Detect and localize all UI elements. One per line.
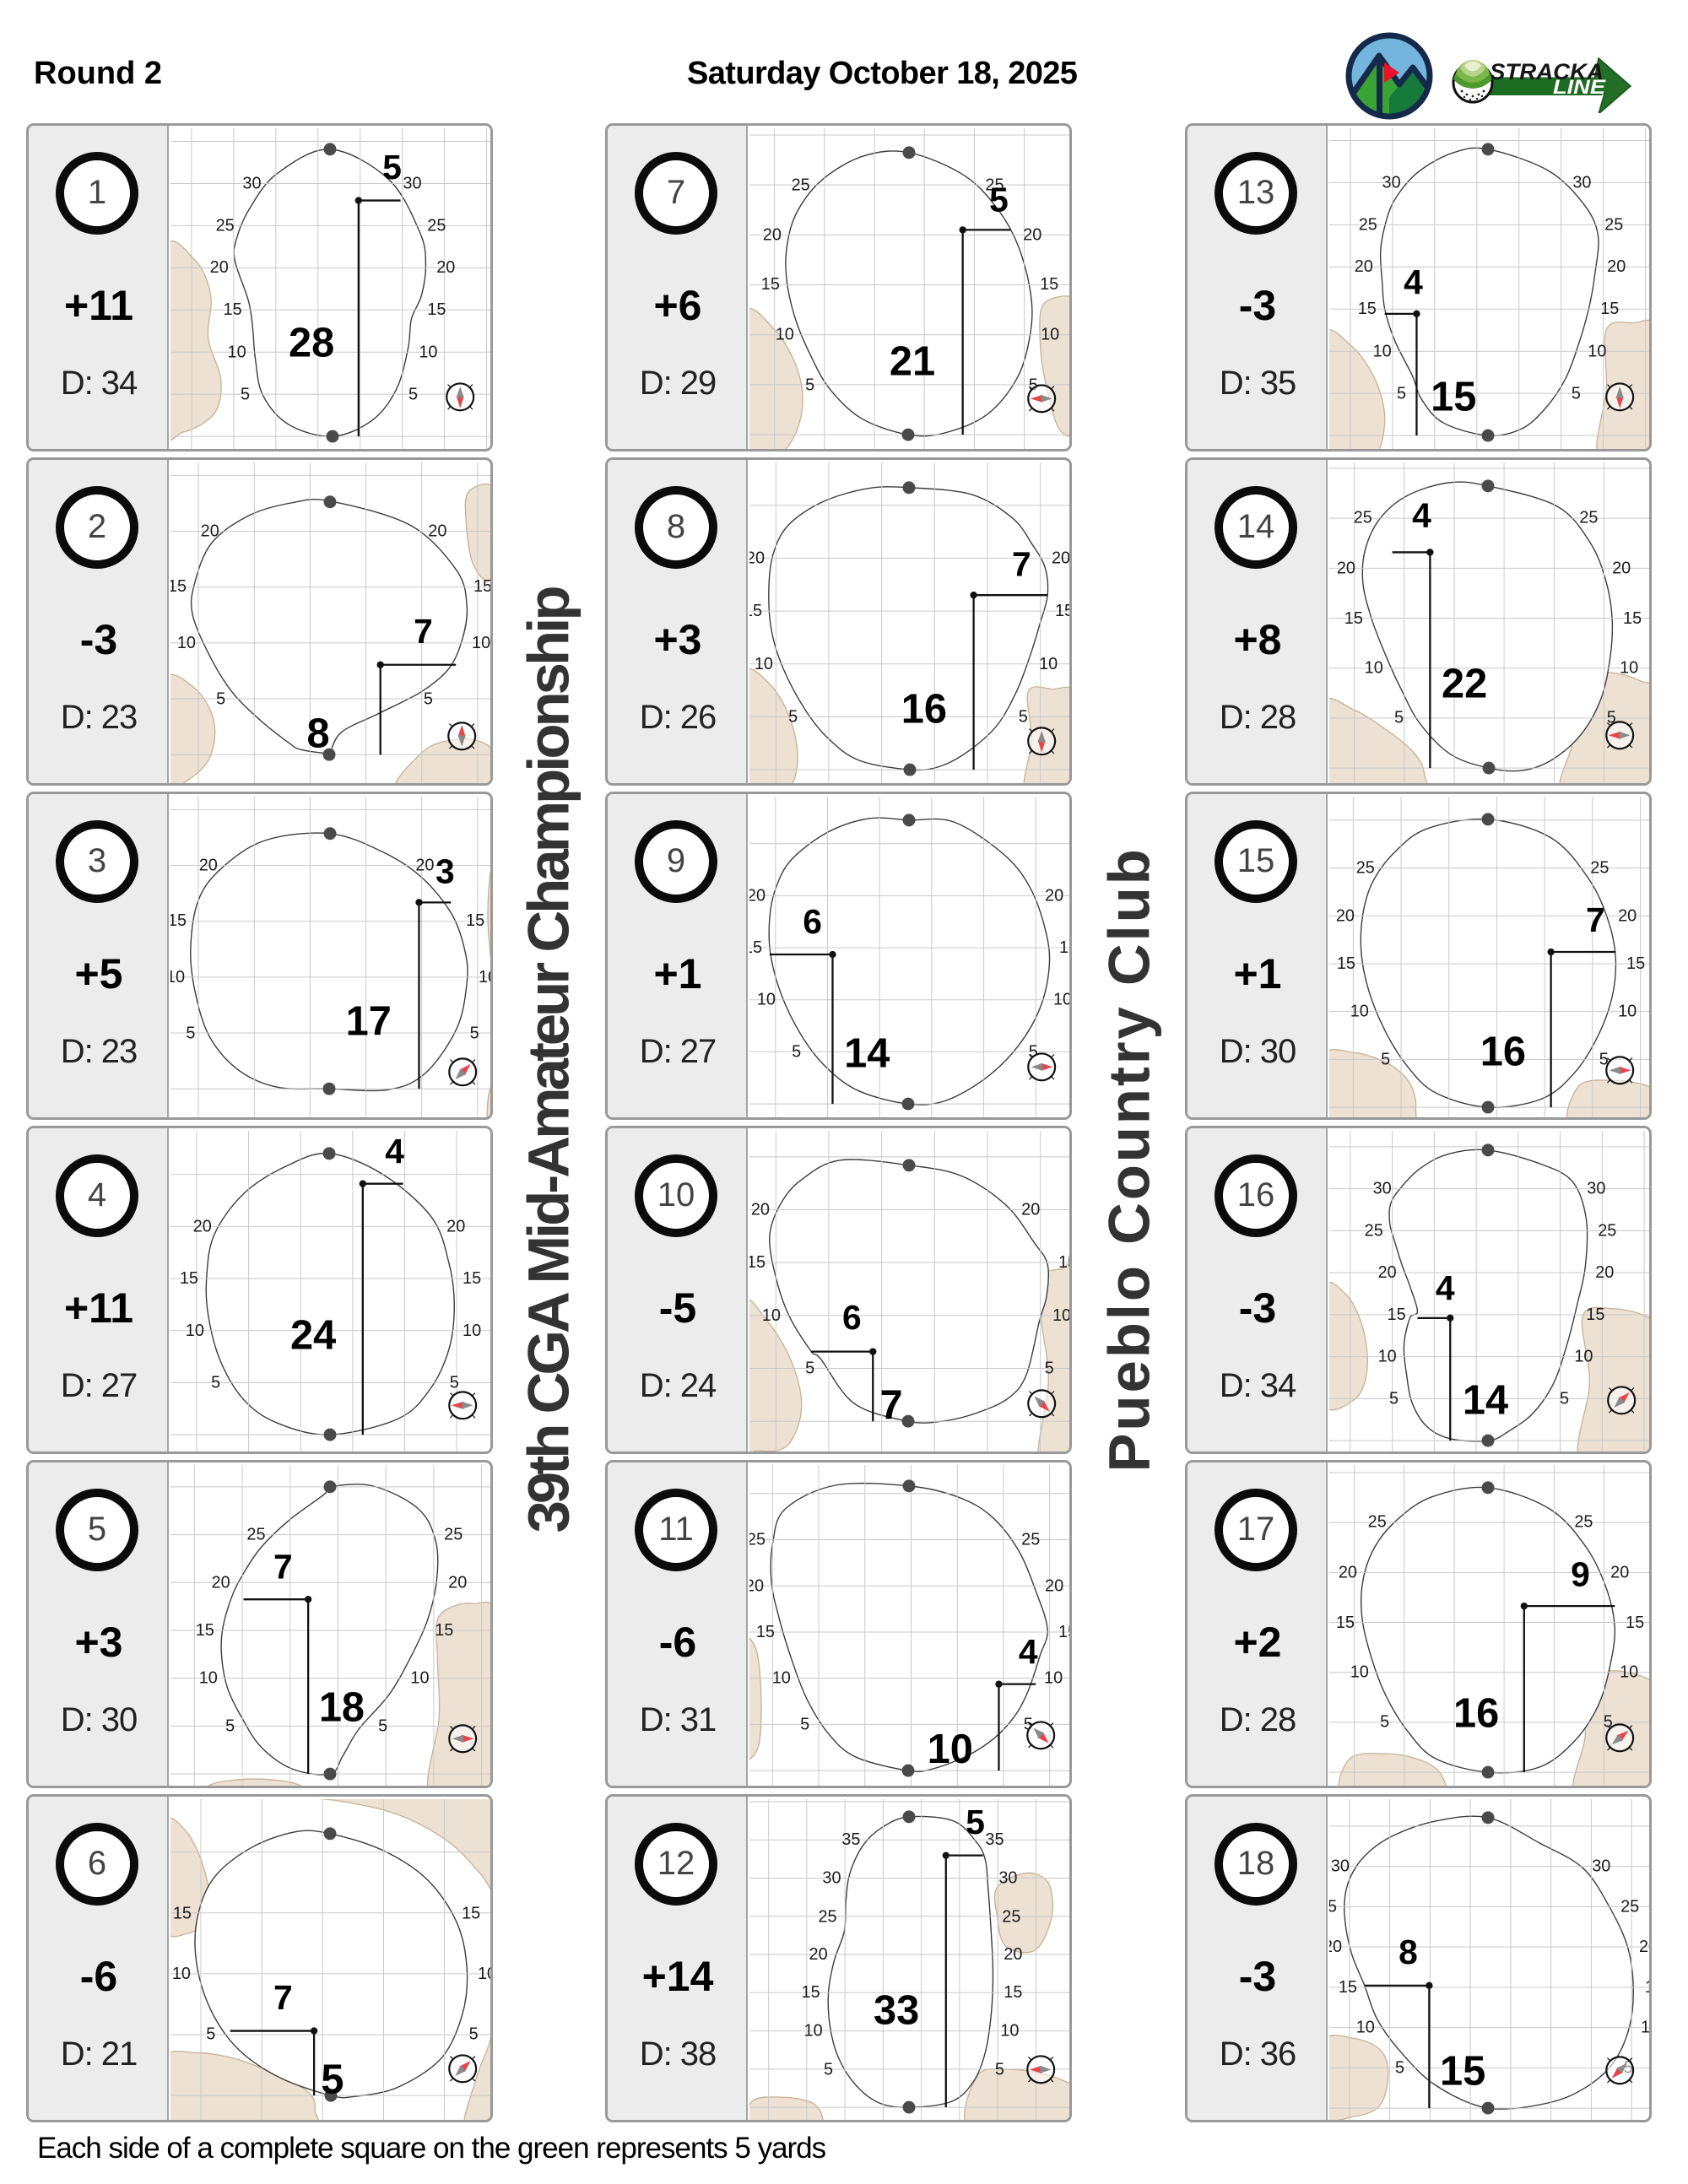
svg-text:10: 10 [1574, 1348, 1593, 1366]
svg-text:10: 10 [472, 634, 490, 652]
svg-text:15: 15 [224, 300, 242, 319]
svg-text:10: 10 [1620, 659, 1638, 678]
svg-text:20: 20 [1052, 549, 1070, 567]
svg-text:5: 5 [1019, 707, 1028, 726]
svg-text:20: 20 [1612, 559, 1631, 577]
svg-text:10: 10 [228, 343, 246, 362]
svg-text:20: 20 [428, 522, 446, 541]
svg-text:15: 15 [473, 577, 492, 596]
svg-text:15: 15 [170, 577, 187, 596]
svg-text:4: 4 [1404, 262, 1423, 301]
svg-text:25: 25 [1002, 1907, 1020, 1926]
svg-text:10: 10 [1044, 1669, 1063, 1688]
svg-text:10: 10 [1039, 655, 1058, 673]
svg-text:10: 10 [1000, 2022, 1019, 2041]
svg-text:5: 5 [216, 690, 225, 709]
svg-text:10: 10 [1350, 1663, 1369, 1682]
svg-text:25: 25 [1620, 1897, 1639, 1916]
svg-text:25: 25 [818, 1907, 836, 1926]
svg-text:15: 15 [761, 275, 780, 294]
svg-text:20: 20 [1021, 1201, 1040, 1219]
svg-text:15: 15 [173, 1904, 192, 1922]
svg-text:15: 15 [1055, 602, 1072, 620]
svg-text:10: 10 [1053, 991, 1072, 1009]
svg-text:20: 20 [1045, 1576, 1063, 1595]
svg-text:5: 5 [805, 1360, 814, 1378]
svg-text:30: 30 [1373, 1180, 1392, 1198]
svg-text:30: 30 [1572, 174, 1591, 192]
svg-text:15: 15 [1600, 300, 1619, 318]
svg-text:20: 20 [212, 1573, 230, 1592]
svg-text:7: 7 [273, 1978, 293, 2017]
svg-text:9: 9 [1571, 1554, 1590, 1593]
svg-text:25: 25 [1590, 859, 1609, 878]
svg-text:10: 10 [478, 1965, 493, 1983]
svg-text:10: 10 [463, 1322, 481, 1340]
svg-text:15: 15 [749, 1253, 766, 1272]
svg-text:15: 15 [1626, 1614, 1644, 1632]
svg-text:25: 25 [1598, 1221, 1616, 1240]
svg-text:8: 8 [307, 711, 330, 756]
svg-text:20: 20 [1329, 1938, 1342, 1956]
svg-text:20: 20 [749, 886, 766, 905]
svg-text:15: 15 [466, 911, 484, 930]
svg-text:15: 15 [196, 1621, 214, 1640]
svg-text:7: 7 [880, 1382, 903, 1428]
svg-text:30: 30 [242, 175, 261, 193]
svg-text:10: 10 [479, 968, 493, 987]
svg-text:3: 3 [436, 852, 455, 891]
svg-text:25: 25 [1356, 859, 1375, 878]
svg-text:20: 20 [210, 258, 229, 277]
svg-text:5: 5 [424, 690, 433, 709]
svg-text:5: 5 [470, 1024, 479, 1043]
svg-text:15: 15 [1358, 300, 1377, 318]
svg-text:5: 5 [186, 1024, 195, 1043]
svg-text:25: 25 [444, 1526, 463, 1544]
svg-text:15: 15 [802, 1983, 820, 2002]
svg-text:20: 20 [1610, 1563, 1629, 1581]
svg-text:25: 25 [1359, 215, 1377, 234]
svg-text:15: 15 [1059, 938, 1072, 957]
svg-text:20: 20 [1355, 257, 1373, 276]
svg-text:5: 5 [1395, 2058, 1404, 2077]
svg-text:10: 10 [1350, 1003, 1369, 1021]
svg-text:15: 15 [1431, 374, 1476, 419]
svg-text:20: 20 [809, 1945, 828, 1964]
svg-text:20: 20 [436, 258, 455, 277]
svg-text:25: 25 [1368, 1513, 1387, 1532]
svg-text:15: 15 [1058, 1623, 1072, 1641]
svg-text:10: 10 [762, 1306, 781, 1325]
svg-text:15: 15 [1440, 2048, 1485, 2094]
svg-text:10: 10 [1041, 326, 1059, 344]
svg-text:10: 10 [928, 1727, 973, 1772]
svg-text:20: 20 [749, 549, 765, 567]
svg-text:35: 35 [841, 1830, 860, 1849]
svg-text:10: 10 [1373, 343, 1392, 361]
svg-text:5: 5 [805, 376, 814, 394]
svg-text:15: 15 [1344, 609, 1363, 628]
svg-text:10: 10 [1618, 1003, 1637, 1021]
svg-text:20: 20 [415, 857, 434, 875]
svg-text:5: 5 [408, 385, 418, 403]
svg-text:15: 15 [1040, 275, 1058, 294]
svg-text:10: 10 [1620, 1663, 1638, 1682]
svg-text:4: 4 [1019, 1632, 1038, 1671]
svg-text:4: 4 [385, 1132, 404, 1170]
svg-text:16: 16 [901, 686, 947, 732]
svg-text:15: 15 [756, 1623, 775, 1641]
svg-text:10: 10 [1052, 1306, 1071, 1325]
svg-text:10: 10 [177, 634, 196, 652]
svg-text:14: 14 [1463, 1377, 1508, 1423]
svg-text:15: 15 [462, 1904, 480, 1922]
svg-text:5: 5 [966, 1803, 985, 1841]
svg-text:20: 20 [1337, 559, 1355, 577]
svg-text:10: 10 [772, 1669, 791, 1688]
svg-text:4: 4 [1412, 496, 1431, 535]
svg-text:20: 20 [1607, 257, 1626, 276]
svg-text:10: 10 [1365, 659, 1383, 678]
svg-text:5: 5 [321, 2057, 344, 2102]
svg-text:10: 10 [172, 1965, 191, 1983]
svg-text:16: 16 [1480, 1029, 1526, 1074]
svg-text:20: 20 [193, 1217, 212, 1235]
svg-text:30: 30 [822, 1869, 841, 1888]
svg-text:5: 5 [1045, 1360, 1054, 1378]
svg-text:5: 5 [1380, 1712, 1389, 1731]
svg-text:14: 14 [844, 1030, 890, 1076]
svg-text:20: 20 [1378, 1263, 1397, 1282]
svg-text:10: 10 [410, 1669, 429, 1688]
svg-text:20: 20 [1023, 225, 1041, 244]
svg-text:15: 15 [749, 602, 762, 620]
svg-text:16: 16 [1453, 1690, 1499, 1736]
svg-text:5: 5 [241, 385, 250, 403]
svg-text:5: 5 [788, 707, 798, 726]
svg-text:15: 15 [1339, 1978, 1357, 1997]
svg-text:7: 7 [273, 1547, 293, 1586]
svg-text:5: 5 [206, 2025, 215, 2044]
svg-text:5: 5 [995, 2060, 1004, 2079]
svg-text:22: 22 [1442, 662, 1487, 707]
svg-text:28: 28 [289, 321, 334, 366]
svg-text:15: 15 [1004, 1983, 1022, 2002]
svg-text:7: 7 [414, 612, 433, 651]
svg-text:7: 7 [1012, 544, 1031, 583]
svg-text:10: 10 [186, 1322, 204, 1340]
svg-text:10: 10 [804, 2022, 823, 2041]
svg-text:15: 15 [1623, 609, 1642, 628]
svg-text:5: 5 [382, 148, 402, 187]
svg-text:20: 20 [1045, 886, 1063, 905]
svg-text:18: 18 [319, 1684, 365, 1730]
svg-text:30: 30 [998, 1869, 1017, 1888]
svg-text:5: 5 [1389, 1389, 1399, 1408]
svg-text:5: 5 [1381, 1050, 1390, 1068]
svg-text:15: 15 [427, 300, 446, 319]
svg-text:20: 20 [1339, 1563, 1357, 1581]
svg-text:30: 30 [403, 175, 421, 193]
svg-text:25: 25 [246, 1526, 265, 1544]
svg-text:5: 5 [792, 1042, 801, 1061]
svg-text:25: 25 [1365, 1221, 1383, 1240]
svg-text:5: 5 [800, 1715, 809, 1733]
svg-text:15: 15 [180, 1269, 198, 1288]
svg-text:20: 20 [201, 522, 219, 541]
svg-text:15: 15 [463, 1269, 481, 1288]
svg-text:20: 20 [446, 1217, 465, 1235]
svg-text:20: 20 [1336, 906, 1355, 925]
svg-text:25: 25 [1604, 215, 1623, 234]
svg-text:10: 10 [755, 655, 773, 673]
svg-text:10: 10 [1356, 2019, 1375, 2037]
svg-text:25: 25 [1579, 509, 1598, 527]
svg-text:20: 20 [1595, 1263, 1614, 1282]
svg-text:25: 25 [792, 176, 810, 195]
svg-text:30: 30 [1587, 1180, 1605, 1198]
svg-text:21: 21 [890, 339, 935, 385]
svg-text:25: 25 [749, 1531, 766, 1549]
svg-text:20: 20 [1004, 1945, 1022, 1964]
svg-text:30: 30 [1382, 174, 1401, 192]
svg-text:15: 15 [1336, 1614, 1355, 1632]
svg-text:15: 15 [435, 1621, 453, 1640]
svg-text:5: 5 [1572, 384, 1581, 403]
svg-text:20: 20 [1639, 1938, 1652, 1956]
svg-text:5: 5 [450, 1373, 459, 1392]
svg-text:15: 15 [1337, 954, 1355, 973]
svg-text:33: 33 [874, 1988, 919, 2034]
svg-text:10: 10 [1641, 2019, 1652, 2037]
svg-text:30: 30 [1592, 1857, 1610, 1876]
svg-text:5: 5 [469, 2025, 479, 2044]
svg-text:15: 15 [1058, 1253, 1072, 1272]
svg-text:20: 20 [763, 225, 782, 244]
svg-text:10: 10 [776, 326, 794, 344]
svg-text:20: 20 [751, 1201, 770, 1219]
svg-text:10: 10 [1378, 1348, 1397, 1366]
svg-text:5: 5 [225, 1716, 235, 1735]
svg-text:20: 20 [1618, 906, 1637, 925]
svg-text:25: 25 [1354, 509, 1372, 527]
svg-text:25: 25 [1329, 1897, 1337, 1916]
svg-text:10: 10 [170, 968, 185, 987]
svg-text:LINE: LINE [1553, 76, 1606, 99]
svg-text:10: 10 [199, 1669, 218, 1688]
svg-text:5: 5 [824, 2060, 833, 2079]
svg-text:25: 25 [1574, 1513, 1593, 1532]
svg-text:15: 15 [1586, 1306, 1604, 1324]
svg-text:6: 6 [803, 902, 822, 941]
svg-text:5: 5 [989, 181, 1009, 219]
svg-text:25: 25 [427, 216, 446, 235]
svg-text:10: 10 [1588, 343, 1606, 361]
svg-text:30: 30 [1331, 1857, 1350, 1876]
svg-text:15: 15 [1626, 954, 1645, 973]
svg-text:15: 15 [1645, 1978, 1652, 1997]
svg-text:25: 25 [216, 216, 235, 235]
svg-text:25: 25 [1021, 1531, 1040, 1549]
svg-text:6: 6 [842, 1298, 862, 1337]
svg-text:15: 15 [170, 911, 187, 930]
svg-text:10: 10 [757, 991, 776, 1009]
svg-text:5: 5 [211, 1373, 220, 1392]
svg-text:20: 20 [448, 1573, 467, 1592]
svg-text:20: 20 [749, 1576, 764, 1595]
svg-text:35: 35 [985, 1830, 1004, 1849]
svg-text:4: 4 [1436, 1268, 1455, 1307]
svg-text:5: 5 [378, 1716, 387, 1735]
svg-text:10: 10 [419, 343, 437, 362]
svg-text:17: 17 [346, 999, 392, 1045]
svg-text:15: 15 [1388, 1306, 1406, 1324]
svg-text:24: 24 [290, 1313, 336, 1359]
svg-text:5: 5 [1397, 384, 1406, 403]
svg-text:20: 20 [199, 857, 218, 875]
svg-text:8: 8 [1399, 1933, 1418, 1971]
svg-text:15: 15 [749, 938, 762, 957]
svg-text:5: 5 [1560, 1389, 1569, 1408]
svg-text:5: 5 [1394, 708, 1404, 727]
svg-text:7: 7 [1586, 900, 1605, 939]
